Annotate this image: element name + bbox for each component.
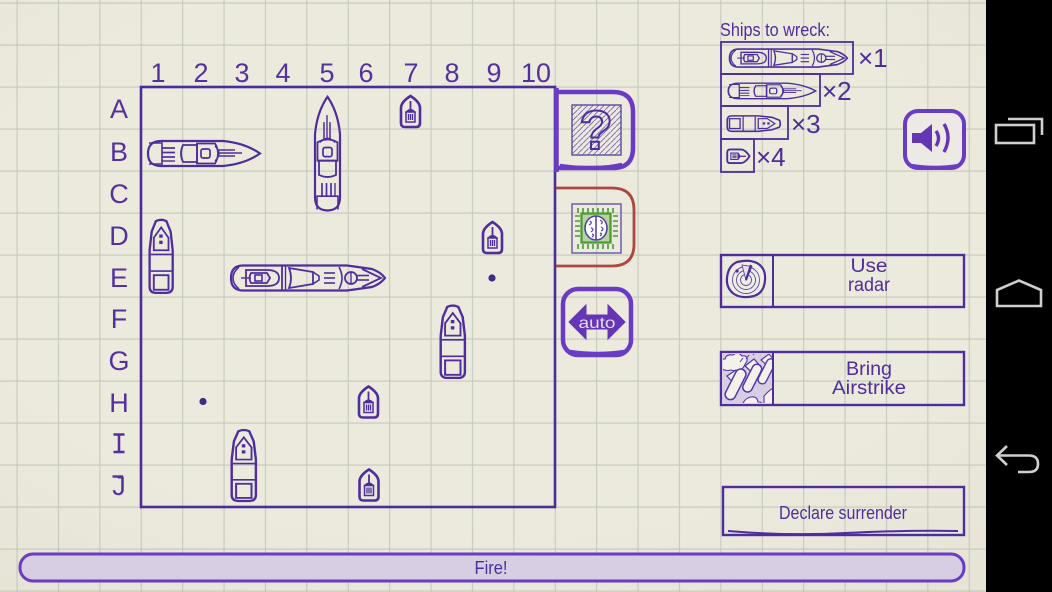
svg-text:5: 5 [319, 58, 334, 88]
svg-text:radar: radar [848, 275, 891, 296]
svg-text:×1: ×1 [858, 43, 888, 73]
svg-text:8: 8 [444, 58, 459, 88]
svg-text:Fire!: Fire! [475, 558, 508, 578]
svg-text:C: C [109, 179, 129, 209]
svg-text:2: 2 [193, 58, 208, 88]
svg-text:Declare surrender: Declare surrender [779, 503, 907, 523]
svg-text:6: 6 [358, 58, 373, 88]
svg-text:A: A [110, 94, 128, 124]
svg-text:B: B [110, 137, 128, 167]
svg-text:H: H [109, 388, 129, 418]
svg-text:Ships to wreck:: Ships to wreck: [720, 20, 830, 40]
svg-text:9: 9 [486, 58, 501, 88]
svg-text:3: 3 [234, 58, 249, 88]
svg-text:D: D [109, 221, 129, 251]
svg-text:1: 1 [150, 58, 165, 88]
svg-text:10: 10 [521, 58, 551, 88]
svg-text:×4: ×4 [756, 142, 786, 172]
svg-text:Airstrike: Airstrike [832, 378, 906, 399]
svg-text:F: F [111, 304, 128, 334]
svg-text:auto: auto [579, 315, 616, 332]
svg-text:7: 7 [403, 58, 418, 88]
svg-text:G: G [108, 346, 129, 376]
svg-text:Bring: Bring [846, 359, 892, 380]
svg-text:Use: Use [851, 256, 888, 277]
svg-text:4: 4 [275, 58, 290, 88]
svg-text:E: E [110, 263, 128, 293]
svg-text:×2: ×2 [822, 76, 852, 106]
svg-text:×3: ×3 [791, 109, 821, 139]
svg-text:?: ? [579, 99, 613, 161]
